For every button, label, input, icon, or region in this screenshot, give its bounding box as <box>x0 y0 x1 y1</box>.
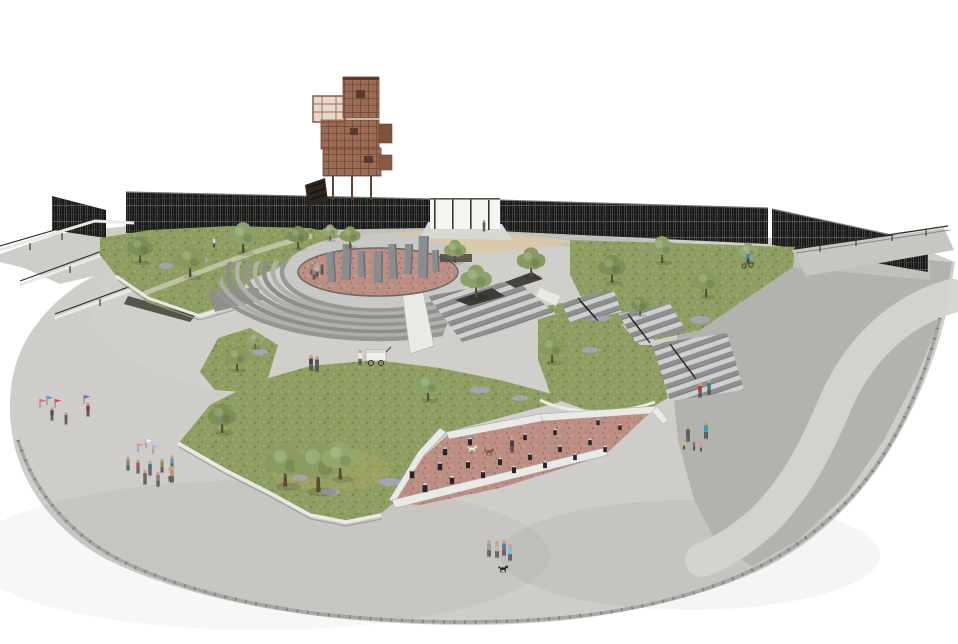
plaza-rendering <box>0 0 958 644</box>
render-canvas <box>0 0 958 644</box>
bollard <box>573 453 577 460</box>
bollard <box>588 439 592 446</box>
tower-open-deck <box>313 96 345 122</box>
bollard <box>437 462 442 471</box>
bollard <box>409 470 415 479</box>
bollard <box>498 458 503 466</box>
entrance-gap <box>420 198 512 240</box>
bollard <box>603 446 607 453</box>
bollard <box>466 461 471 469</box>
tower-wing-mid <box>379 124 392 143</box>
tower-wing-lower <box>379 155 392 170</box>
bollard <box>528 453 533 461</box>
bollard <box>618 424 622 431</box>
bollard <box>468 438 473 446</box>
bollard <box>596 419 600 426</box>
tower-roof <box>343 77 379 80</box>
bollard <box>558 445 562 452</box>
bollard <box>543 461 548 469</box>
bollard <box>512 466 517 474</box>
bollard <box>553 429 557 436</box>
bollard <box>422 483 428 493</box>
bollard <box>442 447 447 456</box>
bollard <box>523 433 527 440</box>
bollard <box>481 471 486 479</box>
bollard <box>449 476 454 485</box>
